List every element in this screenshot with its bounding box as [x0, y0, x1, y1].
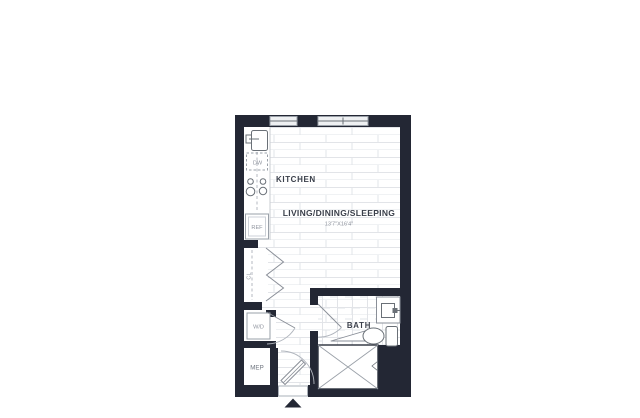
wall-stub-below-ref [244, 240, 258, 248]
washer-dryer-label: W/D [253, 325, 264, 331]
entry-marker-icon [285, 399, 302, 408]
living-label: LIVING/DINING/SLEEPING [283, 208, 395, 218]
closet-label: CL [247, 272, 253, 279]
wall-bottom-left [235, 385, 278, 397]
wall-left [235, 115, 244, 397]
dishwasher-label: DW [253, 161, 263, 167]
refrigerator-label: REF [251, 225, 263, 231]
mep-label: MEP [250, 365, 263, 372]
bath-label: BATH [347, 321, 371, 330]
wall-bath-corner-block [378, 345, 411, 397]
entry-threshold [279, 386, 308, 396]
floor-plan: KITCHEN LIVING/DINING/SLEEPING 13'7"X16'… [0, 0, 640, 418]
floor-plan-page: KITCHEN LIVING/DINING/SLEEPING 13'7"X16'… [0, 0, 640, 418]
vanity-sink-icon [377, 297, 401, 323]
living-dimensions-label: 13'7"X16'4" [325, 222, 354, 228]
wall-laundry-mep [244, 341, 276, 348]
windows [270, 117, 368, 126]
window-icon [318, 117, 368, 126]
wall-bath-left-lower [310, 331, 318, 397]
shower-icon [318, 345, 378, 389]
kitchen-label: KITCHEN [276, 175, 316, 184]
window-icon [270, 117, 297, 126]
wall-bath-left-upper [310, 296, 318, 305]
wall-mep-right [270, 348, 278, 385]
wall-bath-top [310, 288, 400, 296]
wall-closet-bottom [244, 302, 262, 310]
